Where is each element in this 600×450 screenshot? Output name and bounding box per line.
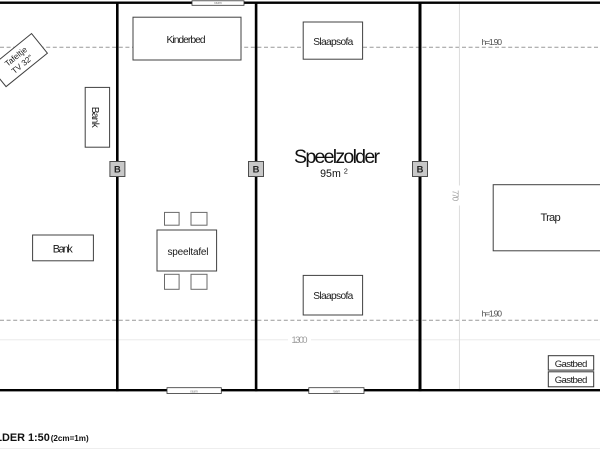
svg-text:Slaapsofa: Slaapsofa [313, 37, 353, 48]
svg-text:770: 770 [451, 190, 460, 202]
svg-text:B: B [114, 164, 121, 175]
svg-text:(2cm=1m): (2cm=1m) [51, 434, 89, 443]
svg-text:Speelzolder: Speelzolder [294, 146, 380, 168]
svg-text:Gastbed: Gastbed [555, 359, 588, 370]
svg-text:Bank: Bank [89, 107, 100, 129]
svg-text:Slaapsofa: Slaapsofa [313, 291, 353, 302]
svg-text:Trap: Trap [540, 212, 560, 224]
svg-text:B: B [417, 164, 424, 175]
svg-text:Gastbed: Gastbed [555, 375, 588, 386]
svg-text:Kinderbed: Kinderbed [167, 35, 206, 46]
svg-text:raam: raam [214, 1, 222, 5]
svg-text:h=1.90: h=1.90 [482, 308, 503, 318]
svg-text:h=1.90: h=1.90 [482, 37, 503, 47]
svg-text:ZOLDER 1:50: ZOLDER 1:50 [0, 432, 50, 444]
svg-text:Bank: Bank [53, 243, 74, 255]
svg-text:speeltafel: speeltafel [168, 247, 209, 258]
svg-text:raam: raam [190, 389, 198, 393]
svg-text:raam: raam [333, 389, 341, 393]
svg-text:1300: 1300 [291, 335, 307, 345]
svg-text:95m 2: 95m 2 [320, 166, 348, 180]
svg-text:B: B [253, 164, 260, 175]
